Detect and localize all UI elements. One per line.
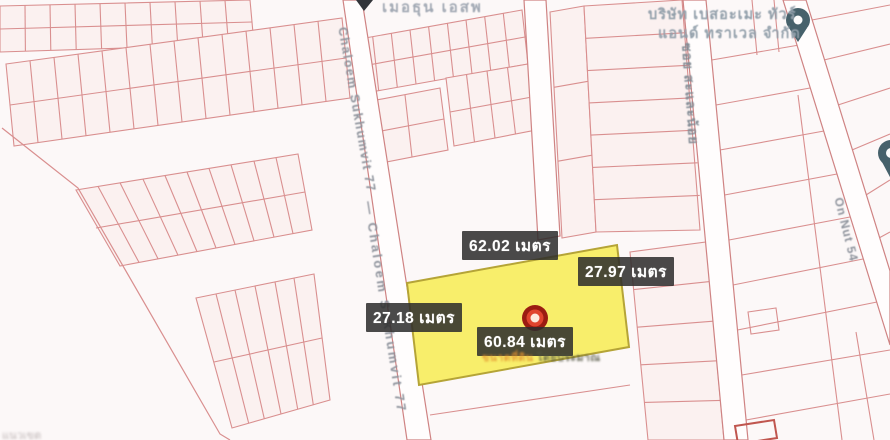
measurement-left: 27.18 เมตร bbox=[366, 303, 462, 332]
map-linework bbox=[0, 0, 890, 440]
top-place-name: เมอธุน เอสพ bbox=[382, 0, 483, 19]
corner-note: แนวเขต bbox=[2, 426, 41, 440]
measurement-top: 62.02 เมตร bbox=[462, 231, 558, 260]
company-name-line1: บริษัท เบสอะเมะ ทัวร์ bbox=[648, 6, 801, 25]
company-name-line2: แอนด์ ทราเวล จำกัด bbox=[648, 25, 801, 44]
parcel-footnote-part1: ขนาดที่ดิน bbox=[482, 352, 534, 364]
road-on-nut-54 bbox=[783, 0, 890, 345]
company-name: บริษัท เบสอะเมะ ทัวร์ แอนด์ ทราเวล จำกัด bbox=[648, 6, 801, 44]
parcel-footnote: ขนาดที่ดิน โดยประมาณ bbox=[482, 349, 601, 366]
measurement-right: 27.97 เมตร bbox=[578, 257, 674, 286]
location-pin-icon bbox=[878, 140, 890, 179]
parcel-footnote-part2: โดยประมาณ bbox=[537, 352, 601, 364]
cadastral-map-canvas: เมอธุน เอสพ บริษัท เบสอะเมะ ทัวร์ แอนด์ … bbox=[0, 0, 890, 440]
